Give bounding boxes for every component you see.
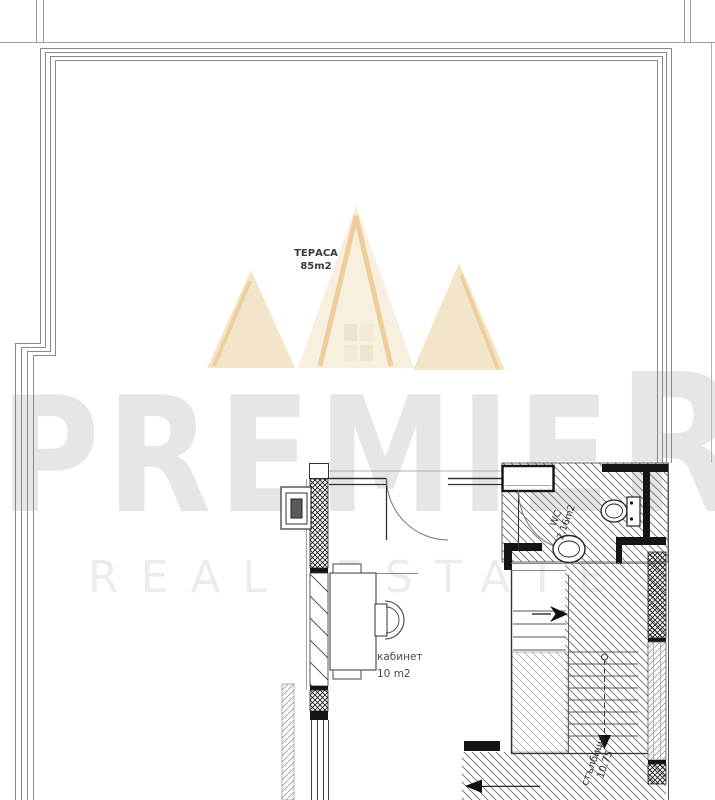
office-door-arc [387, 478, 449, 540]
floor-plan-drawing [0, 0, 715, 800]
terrace-area-value: 85m2 [283, 260, 349, 273]
floor-plan-page: PREMIER REAL ESTATE [0, 0, 715, 800]
shaft-column [281, 487, 311, 529]
sink-cabinet [503, 466, 554, 491]
staircase-area [462, 562, 666, 800]
office-name: кабинет [377, 649, 447, 666]
office-chair [375, 601, 404, 639]
office-top-wall [329, 471, 502, 485]
crown-logo [207, 205, 505, 370]
office-label: кабинет 10 m2 [377, 649, 447, 683]
terrace-name: ТЕРАСА [283, 247, 349, 260]
office-area-value: 10 m2 [377, 666, 447, 683]
terrace-label: ТЕРАСА 85m2 [283, 247, 349, 273]
